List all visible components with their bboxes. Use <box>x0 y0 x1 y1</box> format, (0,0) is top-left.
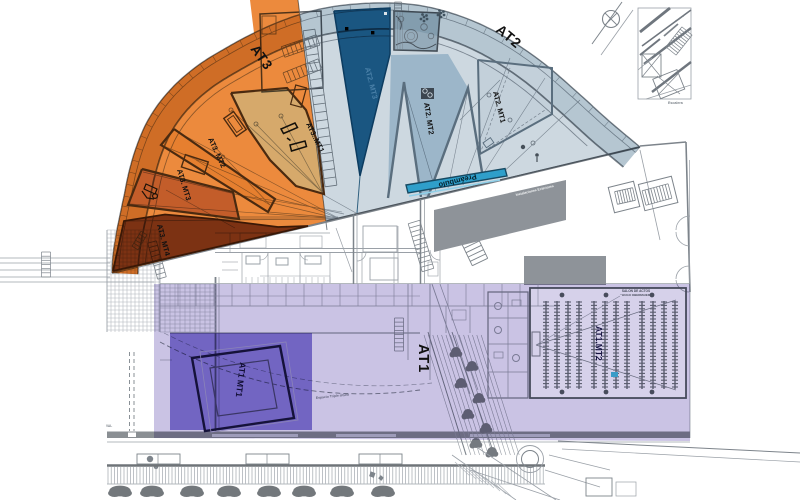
svg-text:VAL: VAL <box>106 424 112 428</box>
svg-text:AT1: AT1 <box>415 344 431 373</box>
svg-text:AT1.MT2: AT1.MT2 <box>594 326 604 361</box>
svg-text:Escalera: Escalera <box>668 101 684 105</box>
